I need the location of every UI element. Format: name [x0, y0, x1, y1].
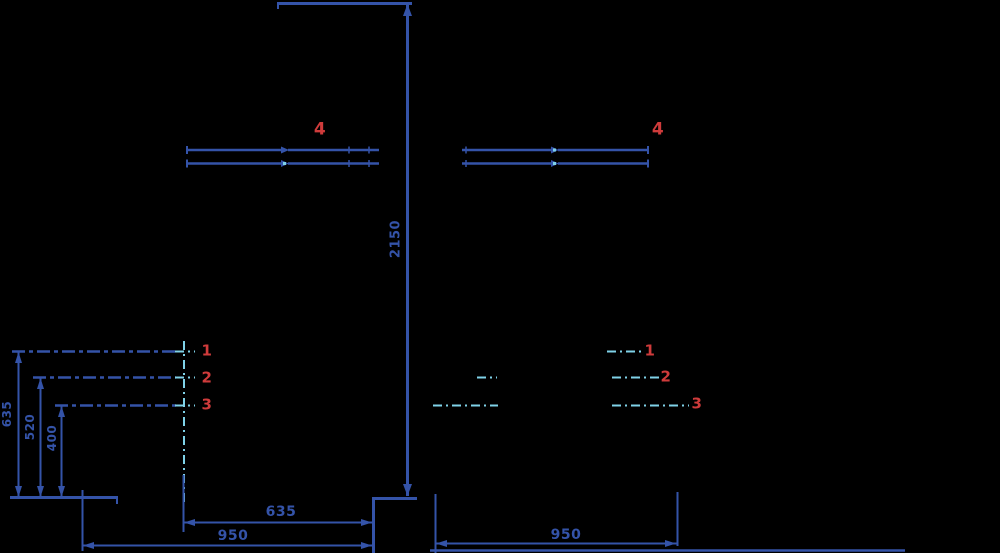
- bottom-right-dimension-text: 950: [551, 528, 582, 542]
- bottom-left-inner-dimension-text: 635: [266, 505, 297, 519]
- hinge-label-right-2: 2: [661, 370, 672, 385]
- hinge-label-left-2: 2: [202, 371, 213, 386]
- hinge-label-right-1: 1: [645, 344, 656, 359]
- bottom-right-dimension-lines: [430, 492, 905, 553]
- bottom-left-outer-dimension-text: 950: [218, 529, 249, 543]
- overall-height-dimension-line: [403, 3, 412, 496]
- left-hinge-centerlines: [175, 341, 195, 505]
- left-hinge-rows: [12, 352, 176, 406]
- left-rail-pair: [187, 146, 379, 168]
- overall-height-dimension-text: 2150: [390, 220, 403, 258]
- top-bar: [277, 2, 412, 9]
- right-hinge-centerlines: [433, 352, 689, 406]
- rail-part-label-left: 4: [314, 122, 326, 139]
- right-rail-pair: [462, 146, 648, 168]
- left-height-dimension-text-2: 520: [24, 414, 36, 441]
- left-height-dimension-text-1: 635: [1, 401, 13, 428]
- drawing-linework: [0, 0, 1000, 553]
- left-height-dimension-text-3: 400: [46, 425, 58, 452]
- hinge-label-right-3: 3: [692, 397, 703, 412]
- hinge-label-left-3: 3: [202, 398, 213, 413]
- rail-part-label-right: 4: [652, 122, 664, 139]
- gate-technical-drawing: 2150 635 520 400 635 950 950 4 4 1 2 3 1…: [0, 0, 1000, 553]
- gate-post-base: [372, 498, 417, 553]
- hinge-label-left-1: 1: [202, 344, 213, 359]
